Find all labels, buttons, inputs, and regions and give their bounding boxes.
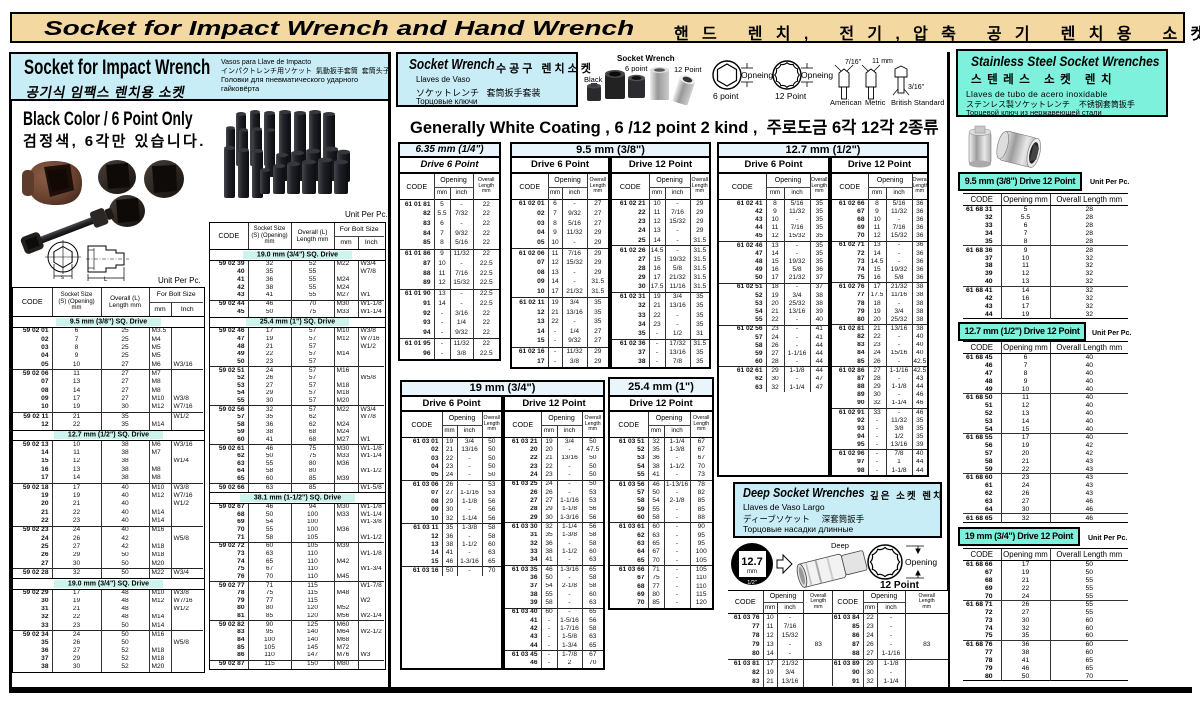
svg-text:Opneing: Opneing: [801, 70, 833, 80]
svg-text:12 Point: 12 Point: [880, 580, 920, 590]
svg-text:1/2": 1/2": [747, 580, 757, 586]
svg-text:3/16": 3/16": [908, 84, 925, 91]
svg-text:6 point: 6 point: [713, 91, 739, 101]
svg-text:Socket Wrench: Socket Wrench: [617, 54, 675, 63]
svg-text:12 Point: 12 Point: [674, 65, 702, 74]
svg-text:Opneing: Opneing: [741, 70, 773, 80]
svg-text:Metric: Metric: [865, 98, 886, 107]
svg-text:Black: Black: [584, 75, 603, 84]
svg-text:mm: mm: [747, 569, 757, 575]
svg-text:7/16": 7/16": [845, 59, 862, 66]
svg-text:12.7: 12.7: [741, 556, 762, 568]
svg-text:American: American: [830, 98, 862, 107]
svg-text:British Standard: British Standard: [891, 98, 944, 107]
svg-text:12 Point: 12 Point: [775, 91, 807, 101]
svg-text:6 point: 6 point: [625, 64, 648, 73]
svg-text:Opening: Opening: [905, 557, 937, 567]
svg-text:Deep: Deep: [831, 541, 849, 550]
svg-text:11 mm: 11 mm: [872, 58, 893, 65]
svg-text:s: s: [61, 275, 64, 281]
